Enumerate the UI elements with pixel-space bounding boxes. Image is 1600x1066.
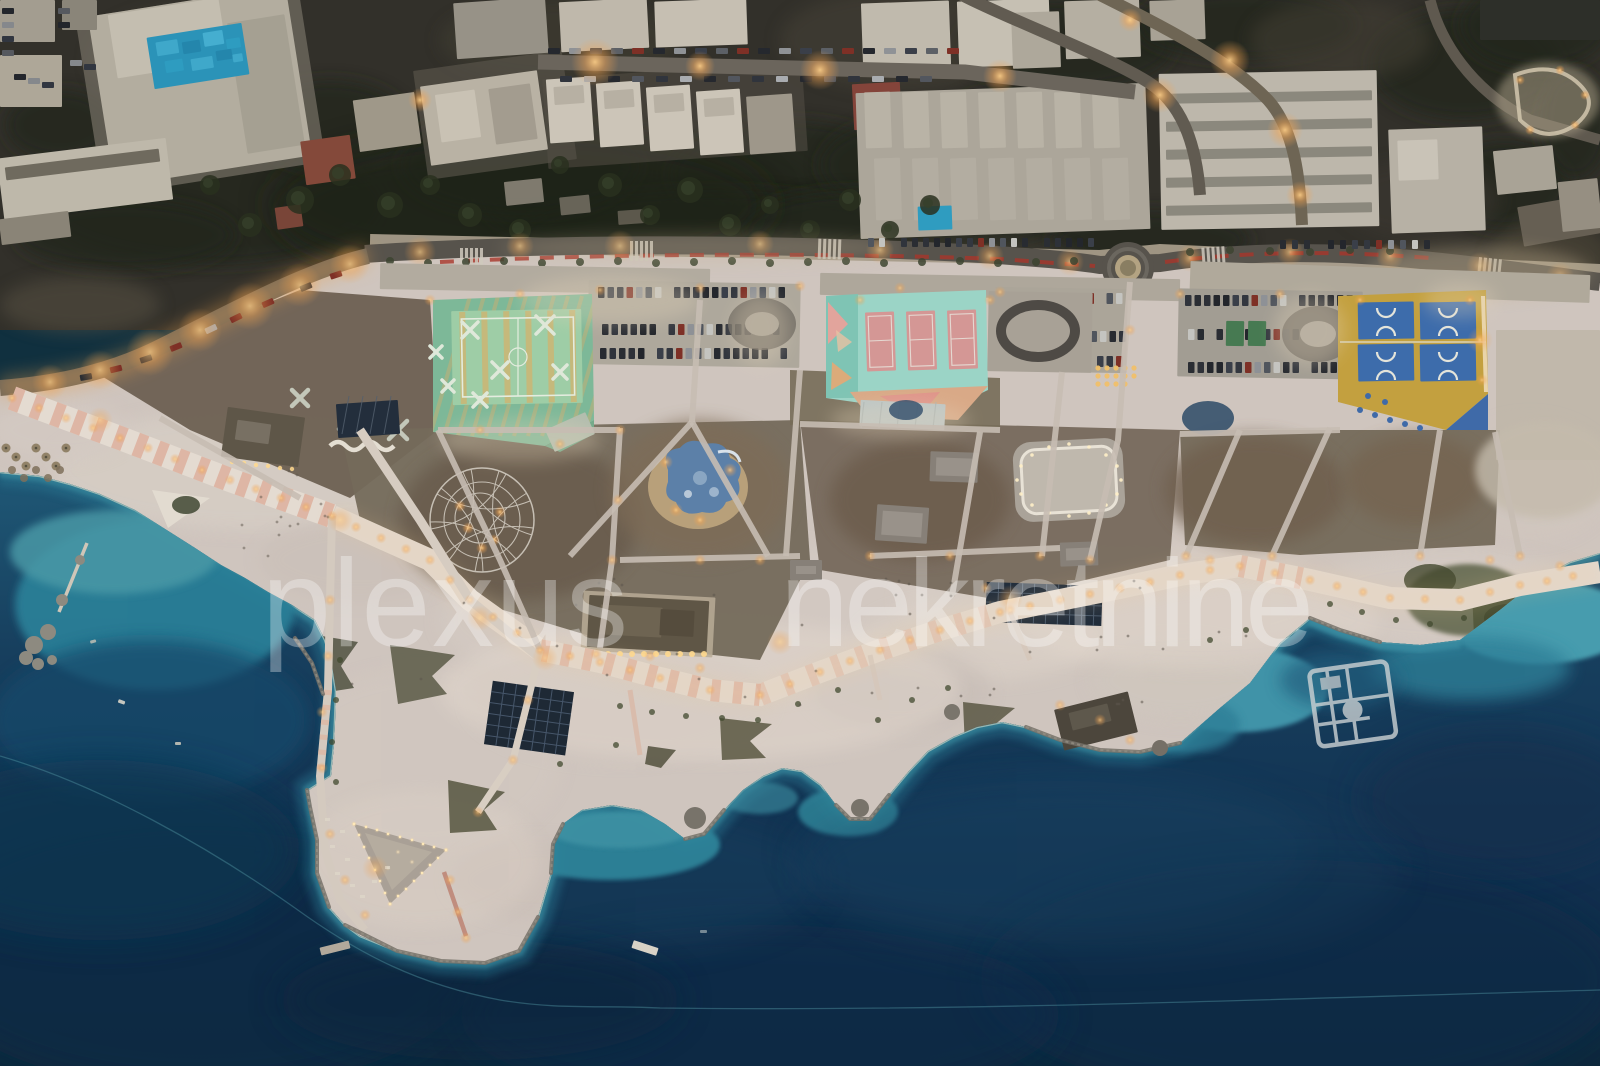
- svg-text:nekretnine: nekretnine: [780, 535, 1314, 673]
- svg-text:plexus: plexus: [262, 535, 628, 673]
